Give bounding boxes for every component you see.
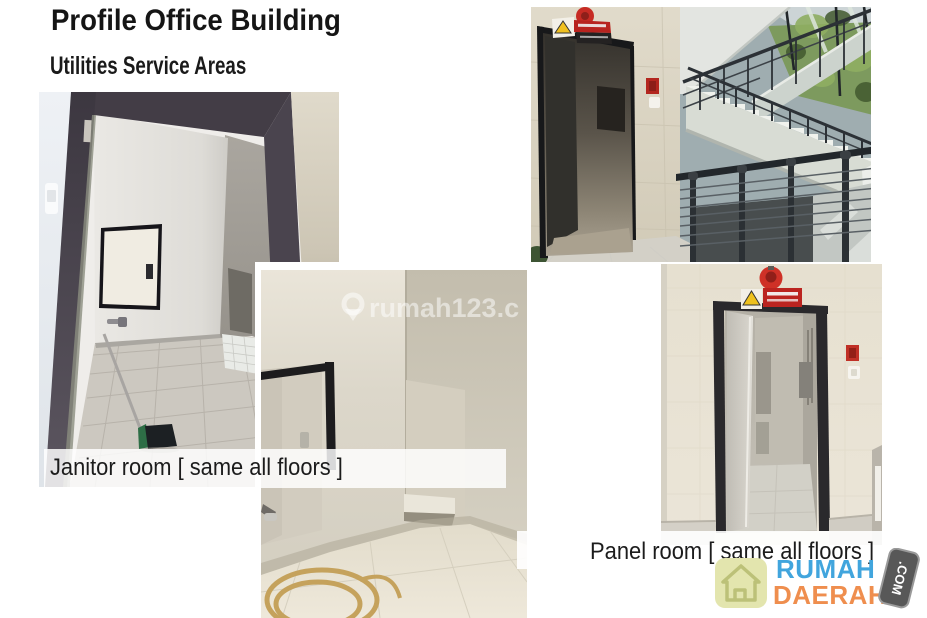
svg-text:DAERAH: DAERAH	[773, 580, 887, 610]
svg-text:rumah123.c: rumah123.c	[369, 293, 519, 323]
